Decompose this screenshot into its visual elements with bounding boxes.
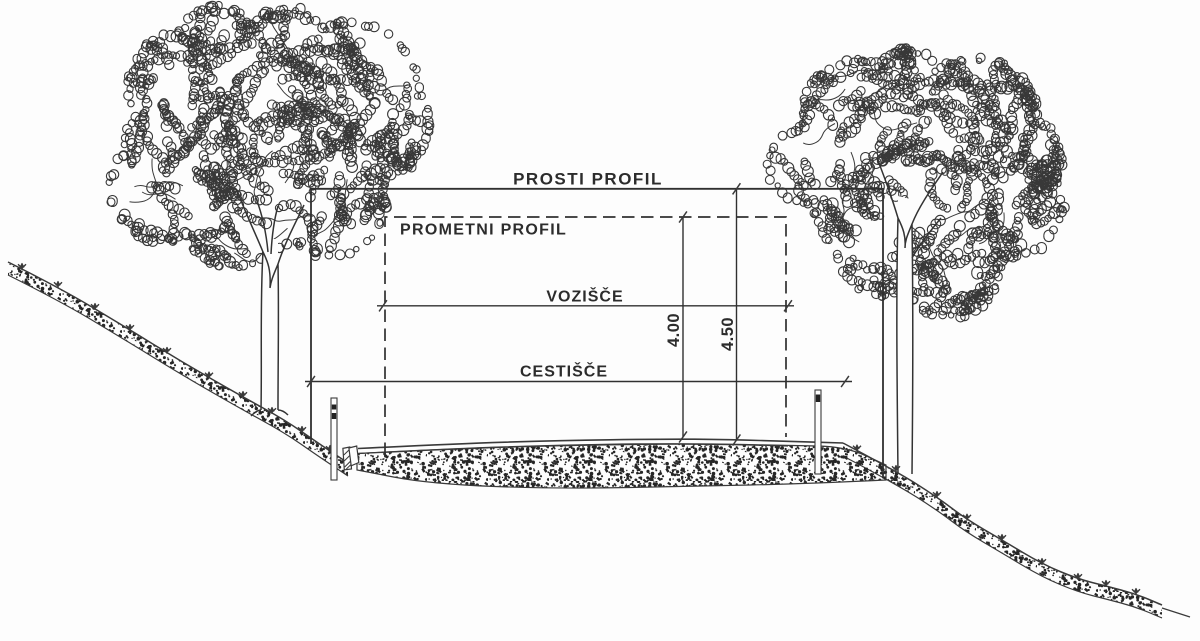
svg-text:4.00: 4.00	[665, 313, 683, 347]
svg-text:4.50: 4.50	[719, 317, 737, 351]
svg-text:PROSTI PROFIL: PROSTI PROFIL	[513, 170, 663, 189]
svg-text:CESTIŠČE: CESTIŠČE	[520, 362, 608, 381]
svg-text:VOZIŠČE: VOZIŠČE	[546, 287, 623, 306]
svg-text:PROMETNI PROFIL: PROMETNI PROFIL	[400, 222, 567, 239]
